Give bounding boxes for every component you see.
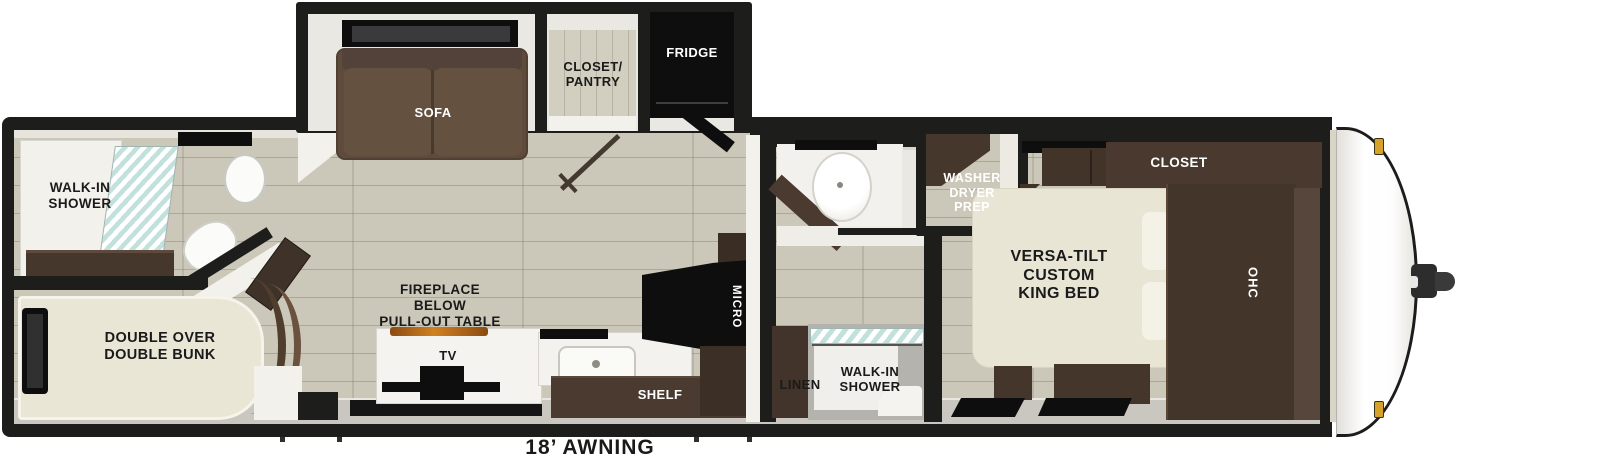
ohc-cabinet <box>1166 184 1296 420</box>
marker-light-bottom <box>1374 401 1384 418</box>
rear-bath-divider-wall <box>14 276 208 290</box>
closet-side-panel <box>1294 188 1320 420</box>
hitch-coupler-notch <box>1411 276 1418 288</box>
toilet-bowl <box>224 154 266 204</box>
pantry-label: CLOSET/ PANTRY <box>545 56 641 92</box>
awning-tick-4 <box>747 437 752 442</box>
bath-window <box>795 140 877 150</box>
awning-tick-2 <box>337 437 342 442</box>
bunk-label: DOUBLE OVER DOUBLE BUNK <box>55 328 265 366</box>
sink-faucet <box>592 360 600 368</box>
fireplace-label: FIREPLACE BELOW PULL-OUT TABLE <box>352 280 528 332</box>
hitch-knob <box>1435 272 1455 291</box>
bedroom-window-bottom-left <box>951 398 1025 417</box>
mid-shower-glass <box>810 328 924 344</box>
washer-label: WASHER DRYER PREP <box>920 164 1024 222</box>
bed-corner-cabinet <box>994 366 1032 400</box>
marker-light-top <box>1374 138 1384 155</box>
bunk-right-wall <box>254 366 302 420</box>
bunk-window-glass <box>27 314 43 388</box>
sofa-window-glass <box>352 26 510 42</box>
stove <box>540 329 608 339</box>
ohc-label: OHC <box>1242 258 1264 308</box>
closet-label: CLOSET <box>1134 154 1224 172</box>
micro-label: MICRO <box>724 264 746 350</box>
fridge-label: FRIDGE <box>650 44 734 62</box>
awning-tick-1 <box>280 437 285 442</box>
front-cap <box>1336 127 1418 437</box>
bedroom-window-bottom-right <box>1038 398 1132 416</box>
awning-label: 18’ AWNING <box>440 436 740 460</box>
bunk-corner-wall <box>298 392 338 420</box>
rear-shower-label: WALK-IN SHOWER <box>26 176 134 216</box>
linen-cabinet <box>772 326 812 418</box>
bath-sink-drain <box>837 182 843 188</box>
top-wall-lining-left <box>14 130 300 138</box>
tv-screen <box>420 366 464 400</box>
tv-label: TV <box>428 348 468 364</box>
bed-overhead-divider <box>1090 150 1092 184</box>
mid-shower-rod <box>812 344 922 346</box>
sofa-label: SOFA <box>398 104 468 122</box>
bath-mid-wall-edge <box>838 228 925 235</box>
fridge-freezer-line <box>656 102 728 104</box>
floorplan: WALK-IN SHOWER DOUBLE OVER DOUBLE BUNK S… <box>0 0 1600 460</box>
shelf-label: SHELF <box>618 386 702 404</box>
pantry-low-wall <box>549 116 636 131</box>
rear-bath-window <box>178 132 252 146</box>
living-right-wall-lining <box>746 135 760 422</box>
bed-label: VERSA-TILT CUSTOM KING BED <box>978 246 1140 306</box>
micro-base-cabinet <box>700 346 752 416</box>
sofa-backrest <box>342 48 522 70</box>
mid-shower-label: WALK-IN SHOWER <box>818 360 922 398</box>
